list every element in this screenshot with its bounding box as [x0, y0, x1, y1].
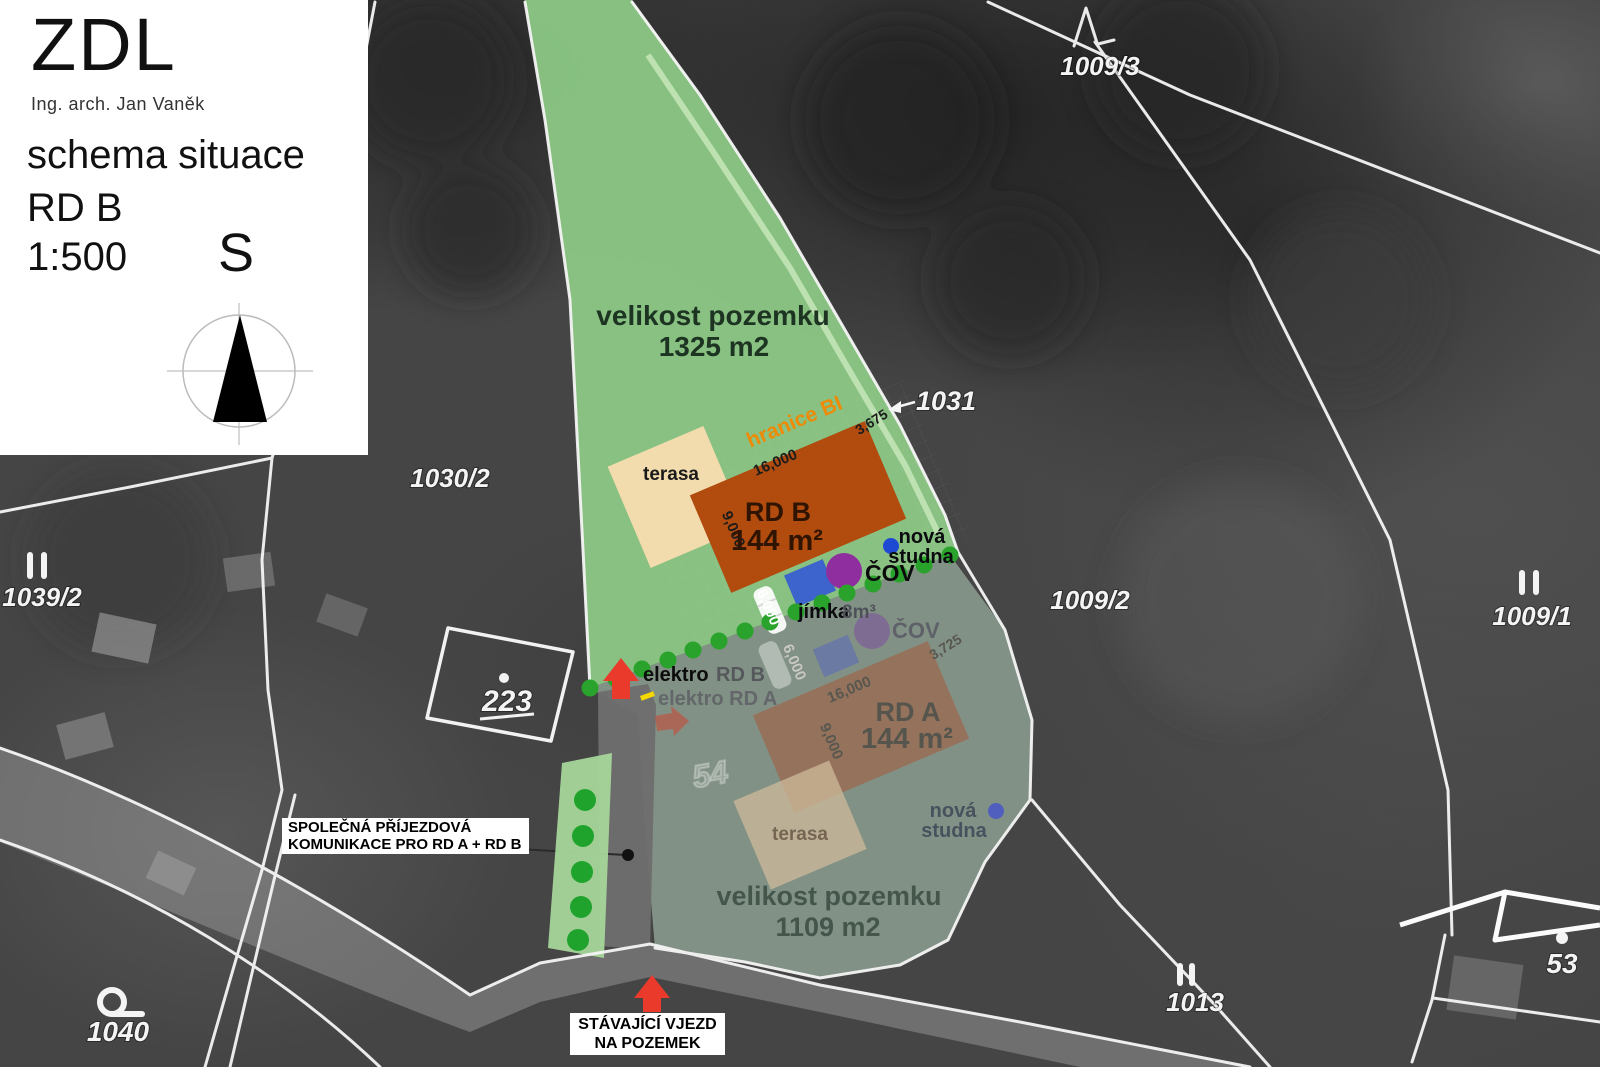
- north-arrow-compass: [167, 299, 313, 449]
- entrance-line2: NA POZEMEK: [570, 1034, 725, 1053]
- terrace-b-label: terasa: [643, 464, 699, 485]
- wwtp-a-label: ČOV: [892, 618, 940, 643]
- area-a-label: velikost pozemku: [716, 881, 941, 911]
- parcel-1009-3: 1009/3: [1060, 51, 1140, 81]
- parcel-53: 53: [1546, 948, 1578, 979]
- wwtp-b-label: ČOV: [865, 559, 916, 586]
- area-a-value: 1109 m2: [775, 912, 880, 942]
- drawing-subtitle: RD B: [27, 186, 123, 231]
- parcel-1009-1: 1009/1: [1492, 601, 1572, 631]
- title-panel: ZDL Ing. arch. Jan Vaněk schema situace …: [0, 0, 368, 455]
- parcel-1040: 1040: [87, 1016, 150, 1047]
- wwtp-b: [826, 553, 862, 589]
- well-a-dot: [988, 803, 1004, 819]
- site-plan-canvas: 16,000 9,000 3,675 6,000 16,000 9,000 3,…: [0, 0, 1600, 1067]
- parcel-54-watermark: 54: [689, 753, 731, 795]
- well-a-line1: nová: [930, 800, 978, 822]
- well-b-line1: nová: [899, 526, 947, 548]
- drawing-title: schema situace: [27, 133, 305, 178]
- parcel-1031: 1031: [916, 386, 976, 416]
- drawing-scale: 1:500: [27, 235, 127, 280]
- access-road-line2: KOMUNIKACE PRO RD A + RD B: [288, 836, 524, 853]
- tank-b-volume: 8m³: [842, 602, 876, 623]
- area-b-label: velikost pozemku: [596, 300, 829, 331]
- parcel-1039-2: 1039/2: [2, 582, 82, 612]
- entrance-line1: STÁVAJÍCÍ VJEZD: [570, 1015, 725, 1034]
- electro-b-label-strong: elektro: [643, 664, 709, 686]
- house-b-area: 144 m²: [731, 525, 823, 557]
- building-53-outline: [1400, 892, 1600, 940]
- well-a-line2: studna: [921, 820, 987, 842]
- house-b-name: RD B: [745, 497, 811, 527]
- parcel-1030-2: 1030/2: [410, 463, 490, 493]
- area-b-value: 1325 m2: [659, 331, 770, 362]
- access-road-note: SPOLEČNÁ PŘÍJEZDOVÁ KOMUNIKACE PRO RD A …: [282, 818, 529, 854]
- terrace-a-label: terasa: [772, 824, 828, 845]
- tree-strip: [548, 753, 612, 958]
- parcel-223: 223: [481, 685, 532, 718]
- parcel-1040-symbol: [100, 990, 142, 1014]
- north-label: S: [218, 222, 254, 284]
- electro-b-label-rest: RD B: [716, 664, 765, 686]
- driveway-point: [622, 849, 634, 861]
- entrance-arrow: [634, 975, 670, 1012]
- parcel-223-group: 223: [480, 673, 534, 719]
- electro-a-label: elektro RD A: [658, 688, 777, 710]
- house-a-area: 144 m²: [861, 723, 953, 755]
- access-road-line1: SPOLEČNÁ PŘÍJEZDOVÁ: [288, 819, 524, 836]
- parcel-1013: 1013: [1166, 987, 1224, 1017]
- parcel-1009-2: 1009/2: [1050, 585, 1130, 615]
- logo: ZDL: [31, 2, 177, 87]
- architect-name: Ing. arch. Jan Vaněk: [31, 94, 205, 115]
- entrance-note: STÁVAJÍCÍ VJEZD NA POZEMEK: [570, 1013, 725, 1055]
